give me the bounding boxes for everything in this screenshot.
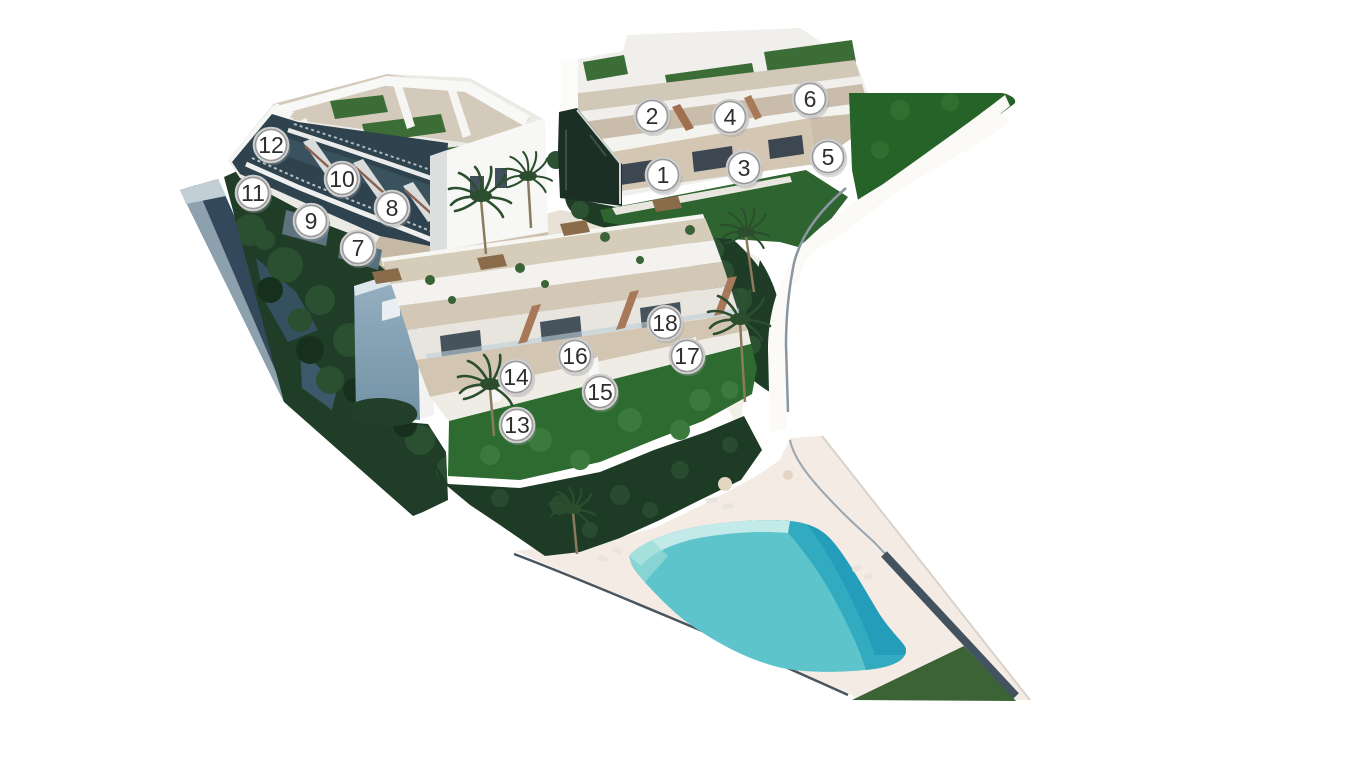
svg-text:13: 13 [504, 412, 530, 438]
svg-text:5: 5 [822, 144, 835, 170]
svg-text:12: 12 [258, 132, 284, 158]
svg-text:11: 11 [241, 180, 265, 206]
svg-text:1: 1 [657, 162, 670, 188]
svg-text:4: 4 [724, 104, 737, 130]
svg-text:18: 18 [652, 310, 678, 336]
svg-text:3: 3 [738, 155, 751, 181]
svg-text:15: 15 [587, 379, 613, 405]
svg-text:2: 2 [646, 103, 659, 129]
svg-text:16: 16 [562, 343, 588, 369]
svg-text:6: 6 [804, 86, 817, 112]
svg-text:8: 8 [386, 195, 399, 221]
svg-text:17: 17 [674, 343, 700, 369]
svg-text:14: 14 [503, 364, 529, 390]
svg-text:9: 9 [305, 208, 318, 234]
svg-text:7: 7 [352, 235, 365, 261]
svg-text:10: 10 [329, 166, 355, 192]
